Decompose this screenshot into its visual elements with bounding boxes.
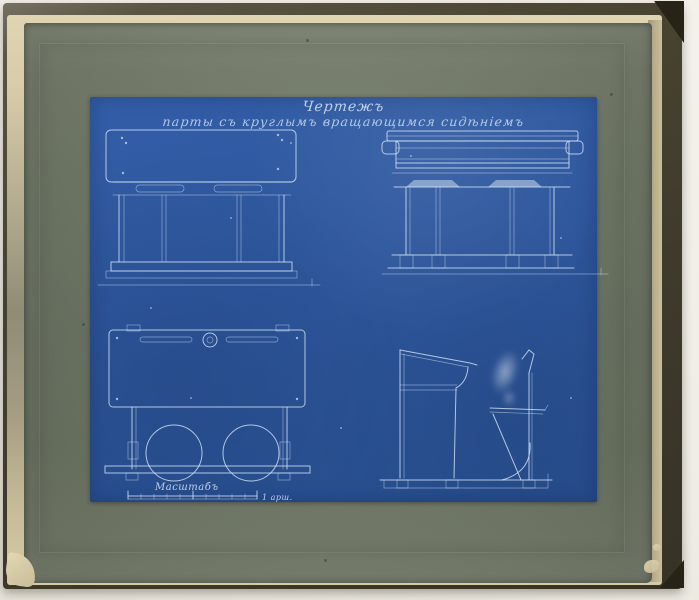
scale-label: Масштабъ — [154, 482, 219, 493]
speck — [560, 237, 562, 239]
corner-wear-bottom-right-small — [653, 544, 661, 551]
desk-lid-plan — [109, 325, 305, 407]
speck — [570, 397, 572, 399]
speck — [610, 93, 613, 96]
speck — [150, 307, 152, 309]
album-photo: Чертежъ парты съ круглымъ вращающимся си… — [0, 0, 699, 600]
drawing-rear-elevation — [382, 129, 610, 285]
speck — [290, 142, 292, 144]
mount-page: Чертежъ парты съ круглымъ вращающимся си… — [24, 23, 652, 583]
legs — [406, 187, 554, 255]
speck — [410, 155, 412, 157]
desk-top-panel — [106, 130, 296, 182]
scale-unit-label: 1 арш. — [262, 493, 293, 502]
desk-profile — [400, 350, 477, 478]
pen-tray-rail — [113, 182, 291, 195]
base — [382, 255, 608, 275]
speck — [340, 427, 342, 429]
pen-trays — [394, 180, 570, 187]
side-supports — [128, 407, 290, 469]
title-line-1: Чертежъ — [89, 99, 598, 115]
drawing-front-elevation — [98, 125, 324, 291]
legs — [119, 195, 284, 262]
scale-bar: Масштабъ 1 арш. — [128, 482, 293, 502]
speck — [324, 559, 327, 562]
blueprint-sheet: Чертежъ парты съ круглымъ вращающимся си… — [90, 97, 597, 502]
desk-top-rear — [382, 131, 583, 173]
stain — [502, 389, 516, 407]
base — [98, 262, 320, 286]
base — [380, 474, 552, 488]
drawing-side-elevation — [380, 328, 580, 498]
speck — [190, 397, 192, 399]
speck — [306, 39, 309, 42]
drawing-plan-view: Масштабъ 1 арш. — [100, 318, 320, 502]
speck — [82, 323, 85, 326]
speck — [230, 217, 232, 219]
